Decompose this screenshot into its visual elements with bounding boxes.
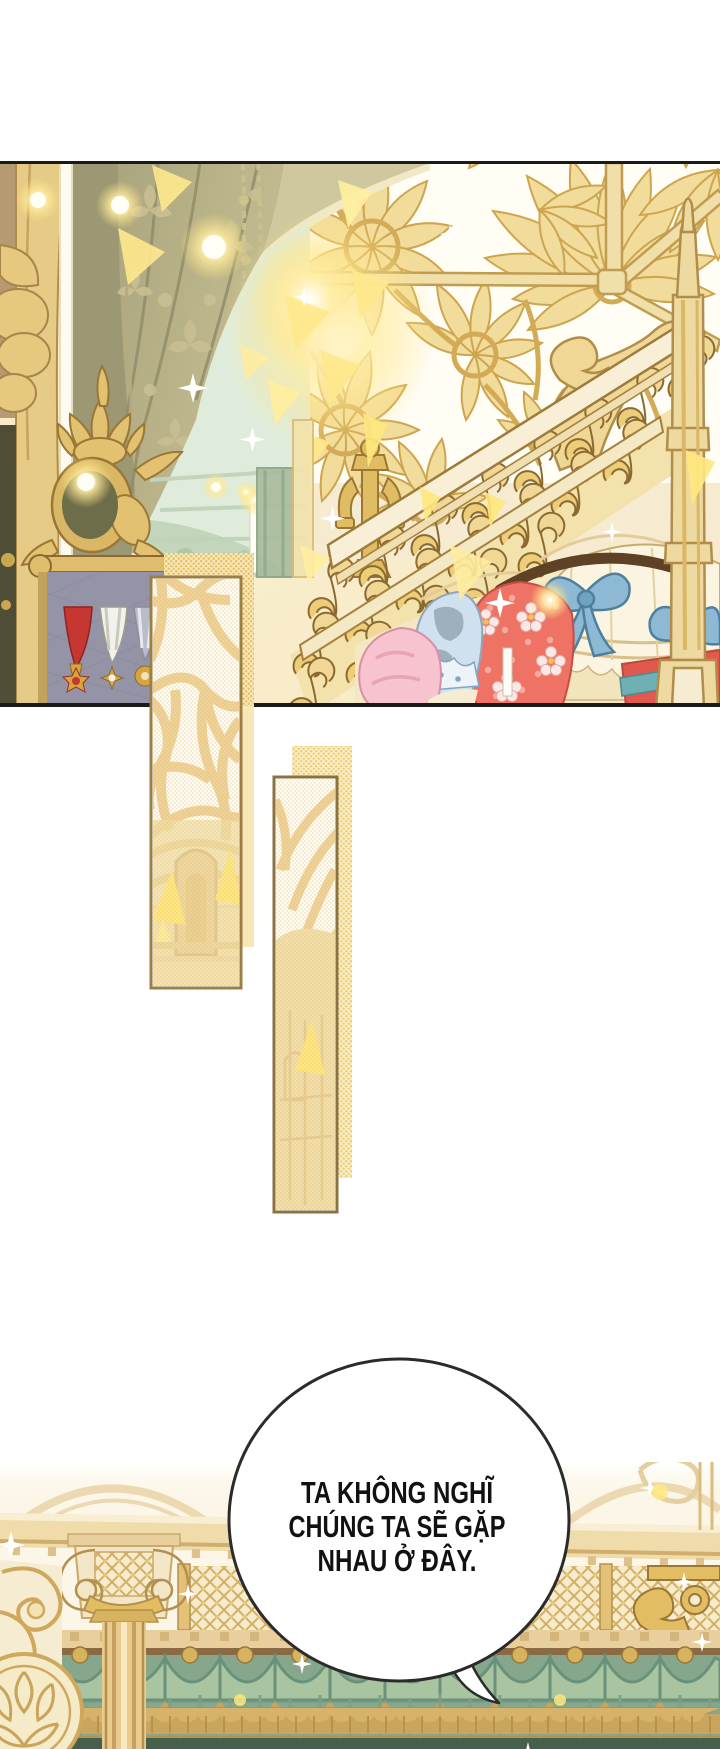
- svg-text:TA KHÔNG NGHĨ: TA KHÔNG NGHĨ: [301, 1474, 495, 1510]
- svg-text:NHAU Ở ĐÂY.: NHAU Ở ĐÂY.: [318, 1542, 477, 1578]
- svg-text:CHÚNG TA SẼ GẶP: CHÚNG TA SẼ GẶP: [289, 1508, 506, 1544]
